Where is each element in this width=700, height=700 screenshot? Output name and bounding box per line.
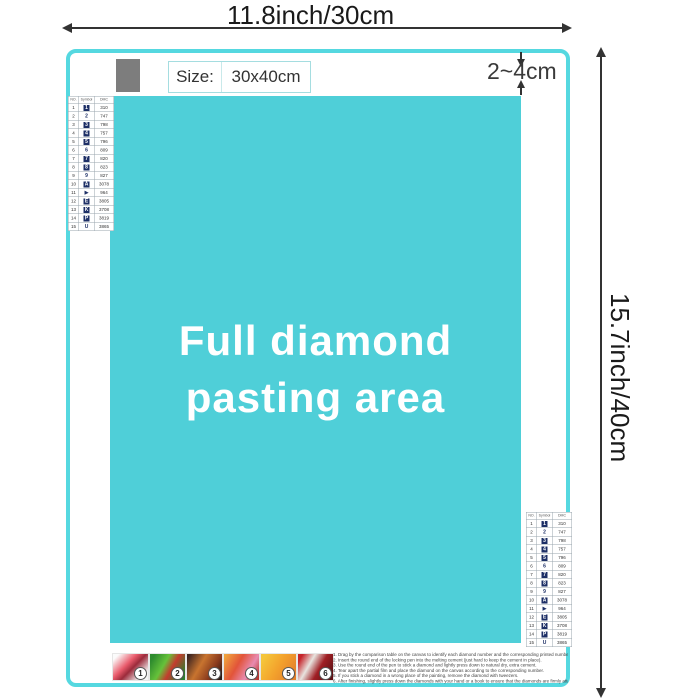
chart-symbol: ▶ xyxy=(84,190,90,196)
color-chart-row: 9 9 827 xyxy=(526,587,572,596)
chart-symbol: 7 xyxy=(542,572,548,578)
margin-arrow-stem-bottom xyxy=(520,87,522,95)
height-dimension-label: 15.7inch/40cm xyxy=(604,293,635,462)
chart-row-symbol-cell: E xyxy=(79,197,95,206)
color-chart-left: NO. Symbol DMC 1 1 310 2 2 xyxy=(68,96,112,236)
chart-row-symbol-cell: 6 xyxy=(537,562,553,571)
chart-row-symbol-cell: 1 xyxy=(537,519,553,528)
chart-header-no: NO. xyxy=(68,96,79,103)
color-chart-row: 12 E 3805 xyxy=(68,197,114,206)
color-chart-row: 12 E 3805 xyxy=(526,613,572,622)
chart-symbol: 4 xyxy=(84,130,90,136)
color-chart-row: 15 U 3865 xyxy=(526,638,572,647)
steps-photo-strip: 1 2 3 4 5 6 xyxy=(112,653,334,681)
chart-row-no: 7 xyxy=(526,570,537,579)
chart-row-symbol-cell: U xyxy=(537,638,553,647)
chart-symbol: ▶ xyxy=(542,606,548,612)
chart-row-code: 809 xyxy=(552,562,572,571)
instructions-block: 1. Drag by the comparison table on the c… xyxy=(333,652,568,684)
chart-row-code: 757 xyxy=(94,129,114,138)
step-photo: 4 xyxy=(223,653,260,681)
chart-symbol: 5 xyxy=(542,555,548,561)
arrow-up-icon xyxy=(596,47,606,57)
chart-row-code: 310 xyxy=(94,103,114,112)
chart-header-code: DMC xyxy=(94,96,114,103)
chart-symbol: A xyxy=(542,597,548,603)
chart-row-no: 15 xyxy=(526,638,537,647)
chart-row-symbol-cell: 9 xyxy=(79,171,95,180)
color-chart-row: 5 5 796 xyxy=(68,137,114,146)
margin-dimension-label: 2~4cm xyxy=(487,58,557,85)
chart-symbol: 2 xyxy=(84,113,90,119)
chart-row-symbol-cell: 2 xyxy=(537,528,553,537)
chart-symbol: 8 xyxy=(542,580,548,586)
color-chart-row: 2 2 747 xyxy=(68,112,114,121)
chart-row-no: 4 xyxy=(526,545,537,554)
chart-row-no: 9 xyxy=(68,171,79,180)
chart-symbol: 1 xyxy=(84,105,90,111)
chart-row-symbol-cell: P xyxy=(537,630,553,639)
step-photo: 3 xyxy=(186,653,223,681)
chart-row-symbol-cell: 1 xyxy=(79,103,95,112)
chart-row-symbol-cell: 5 xyxy=(537,553,553,562)
chart-row-symbol-cell: 4 xyxy=(79,129,95,138)
chart-row-no: 9 xyxy=(526,587,537,596)
chart-symbol: P xyxy=(84,215,90,221)
chart-row-code: 3805 xyxy=(552,613,572,622)
chart-symbol: 8 xyxy=(84,164,90,170)
arrow-left-icon xyxy=(62,23,72,33)
chart-row-no: 7 xyxy=(68,154,79,163)
step-number-badge: 2 xyxy=(171,667,184,680)
chart-symbol: 2 xyxy=(542,529,548,535)
chart-row-symbol-cell: ▶ xyxy=(537,604,553,613)
color-chart-row: 2 2 747 xyxy=(526,528,572,537)
chart-row-no: 14 xyxy=(68,214,79,223)
chart-row-no: 6 xyxy=(68,146,79,155)
chart-row-code: 747 xyxy=(552,528,572,537)
chart-row-code: 3865 xyxy=(552,638,572,647)
color-chart-row: 13 K 3708 xyxy=(68,205,114,214)
chart-row-no: 12 xyxy=(526,613,537,622)
chart-row-code: 3805 xyxy=(94,197,114,206)
chart-row-symbol-cell: 4 xyxy=(537,545,553,554)
pasting-area-text-line2: pasting area xyxy=(186,370,445,427)
arrow-right-icon xyxy=(562,23,572,33)
step-number-badge: 1 xyxy=(134,667,147,680)
chart-row-no: 12 xyxy=(68,197,79,206)
chart-row-no: 8 xyxy=(68,163,79,172)
chart-symbol: K xyxy=(542,623,548,629)
chart-row-symbol-cell: 2 xyxy=(79,112,95,121)
chart-row-code: 820 xyxy=(552,570,572,579)
chart-row-code: 310 xyxy=(552,519,572,528)
chart-row-code: 827 xyxy=(552,587,572,596)
step-photo: 2 xyxy=(149,653,186,681)
chart-row-code: 809 xyxy=(94,146,114,155)
chart-row-symbol-cell: 8 xyxy=(537,579,553,588)
chart-row-no: 5 xyxy=(526,553,537,562)
step-photo: 1 xyxy=(112,653,149,681)
chart-row-symbol-cell: U xyxy=(79,222,95,231)
chart-row-code: 820 xyxy=(94,154,114,163)
size-box: Size: 30x40cm xyxy=(168,61,311,93)
chart-row-code: 3865 xyxy=(94,222,114,231)
pasting-area-text-line1: Full diamond xyxy=(179,313,452,370)
color-chart-row: 6 6 809 xyxy=(526,562,572,571)
pasting-area: Full diamond pasting area xyxy=(110,96,521,643)
chart-row-symbol-cell: A xyxy=(79,180,95,189)
product-diagram: 11.8inch/30cm 15.7inch/40cm Size: 30x40c… xyxy=(0,0,700,700)
chart-row-symbol-cell: 3 xyxy=(537,536,553,545)
chart-symbol: 7 xyxy=(84,156,90,162)
size-box-value: 30x40cm xyxy=(222,62,310,92)
chart-symbol: U xyxy=(542,640,548,646)
chart-row-no: 10 xyxy=(526,596,537,605)
chart-row-no: 1 xyxy=(526,519,537,528)
step-number-badge: 4 xyxy=(245,667,258,680)
chart-row-symbol-cell: K xyxy=(79,205,95,214)
chart-row-no: 3 xyxy=(68,120,79,129)
chart-row-no: 14 xyxy=(526,630,537,639)
color-chart-row: 14 P 3819 xyxy=(68,214,114,223)
color-chart-row: 13 K 3708 xyxy=(526,621,572,630)
chart-row-no: 11 xyxy=(526,604,537,613)
step-number-badge: 3 xyxy=(208,667,221,680)
chart-symbol: 6 xyxy=(84,147,90,153)
color-chart-row: 15 U 3865 xyxy=(68,222,114,231)
chart-header-symbol: Symbol xyxy=(79,96,95,103)
chart-row-symbol-cell: 7 xyxy=(79,154,95,163)
chart-row-code: 823 xyxy=(552,579,572,588)
color-chart-row: 8 8 823 xyxy=(68,163,114,172)
chart-row-code: 3819 xyxy=(94,214,114,223)
color-chart-row: 5 5 796 xyxy=(526,553,572,562)
width-dimension-arrow xyxy=(70,27,564,29)
chart-row-no: 2 xyxy=(68,112,79,121)
chart-symbol: 9 xyxy=(84,173,90,179)
color-chart-row: 1 1 310 xyxy=(526,519,572,528)
color-chart-row: 14 P 3819 xyxy=(526,630,572,639)
step-number-badge: 6 xyxy=(319,667,332,680)
chart-row-symbol-cell: E xyxy=(537,613,553,622)
color-chart-row: 10 A 3078 xyxy=(526,596,572,605)
chart-row-symbol-cell: P xyxy=(79,214,95,223)
chart-symbol: 4 xyxy=(542,546,548,552)
chart-symbol: P xyxy=(542,631,548,637)
chart-row-code: 747 xyxy=(94,112,114,121)
step-number-badge: 5 xyxy=(282,667,295,680)
chart-row-symbol-cell: 3 xyxy=(79,120,95,129)
color-chart-row: 7 7 820 xyxy=(68,154,114,163)
chart-symbol: E xyxy=(84,198,90,204)
color-chart-row: 8 8 823 xyxy=(526,579,572,588)
color-chart-row: 9 9 827 xyxy=(68,171,114,180)
chart-row-symbol-cell: 9 xyxy=(537,587,553,596)
chart-row-no: 10 xyxy=(68,180,79,189)
chart-row-symbol-cell: 8 xyxy=(79,163,95,172)
chart-row-no: 8 xyxy=(526,579,537,588)
chart-row-code: 3708 xyxy=(552,621,572,630)
chart-row-no: 5 xyxy=(68,137,79,146)
chart-row-code: 3708 xyxy=(94,205,114,214)
chart-row-code: 796 xyxy=(552,553,572,562)
chart-row-no: 2 xyxy=(526,528,537,537)
color-chart-row: 4 4 757 xyxy=(68,129,114,138)
color-chart-row: 7 7 820 xyxy=(526,570,572,579)
chart-header-code: DMC xyxy=(552,512,572,519)
chart-row-symbol-cell: ▶ xyxy=(79,188,95,197)
gray-swatch xyxy=(116,59,140,92)
chart-row-no: 4 xyxy=(68,129,79,138)
chart-row-code: 964 xyxy=(94,188,114,197)
chart-symbol: K xyxy=(84,207,90,213)
arrow-down-icon xyxy=(596,688,606,698)
chart-row-code: 3819 xyxy=(552,630,572,639)
height-dimension-arrow xyxy=(600,55,602,688)
chart-row-code: 3078 xyxy=(94,180,114,189)
chart-symbol: 3 xyxy=(84,122,90,128)
chart-row-no: 13 xyxy=(68,205,79,214)
chart-symbol: A xyxy=(84,181,90,187)
chart-row-symbol-cell: A xyxy=(537,596,553,605)
chart-row-code: 827 xyxy=(94,171,114,180)
chart-header-no: NO. xyxy=(526,512,537,519)
chart-row-symbol-cell: K xyxy=(537,621,553,630)
chart-symbol: 5 xyxy=(84,139,90,145)
color-chart-row: 10 A 3078 xyxy=(68,180,114,189)
color-chart-right: NO. Symbol DMC 1 1 310 2 2 xyxy=(526,512,570,652)
chart-row-no: 6 xyxy=(526,562,537,571)
color-chart-row: 3 3 798 xyxy=(526,536,572,545)
color-chart-row: 4 4 757 xyxy=(526,545,572,554)
chart-symbol: E xyxy=(542,614,548,620)
chart-row-symbol-cell: 5 xyxy=(79,137,95,146)
chart-row-code: 796 xyxy=(94,137,114,146)
color-chart-row: 3 3 798 xyxy=(68,120,114,129)
chart-row-no: 15 xyxy=(68,222,79,231)
size-box-label: Size: xyxy=(169,62,222,92)
chart-row-code: 3078 xyxy=(552,596,572,605)
step-photo: 6 xyxy=(297,653,334,681)
chart-row-symbol-cell: 7 xyxy=(537,570,553,579)
chart-row-no: 13 xyxy=(526,621,537,630)
chart-row-code: 798 xyxy=(552,536,572,545)
color-chart-row: 11 ▶ 964 xyxy=(526,604,572,613)
step-photo: 5 xyxy=(260,653,297,681)
chart-symbol: 3 xyxy=(542,538,548,544)
chart-symbol: 1 xyxy=(542,521,548,527)
instruction-line: 6. After finishing, slightly press down … xyxy=(333,679,568,684)
chart-symbol: U xyxy=(84,224,90,230)
chart-row-code: 757 xyxy=(552,545,572,554)
color-chart-row: 11 ▶ 964 xyxy=(68,188,114,197)
chart-header-symbol: Symbol xyxy=(537,512,553,519)
chart-row-symbol-cell: 6 xyxy=(79,146,95,155)
chart-row-no: 3 xyxy=(526,536,537,545)
color-chart-row: 1 1 310 xyxy=(68,103,114,112)
color-chart-row: 6 6 809 xyxy=(68,146,114,155)
chart-symbol: 6 xyxy=(542,563,548,569)
chart-row-code: 798 xyxy=(94,120,114,129)
chart-row-code: 823 xyxy=(94,163,114,172)
chart-row-no: 11 xyxy=(68,188,79,197)
chart-row-code: 964 xyxy=(552,604,572,613)
chart-symbol: 9 xyxy=(542,589,548,595)
chart-row-no: 1 xyxy=(68,103,79,112)
